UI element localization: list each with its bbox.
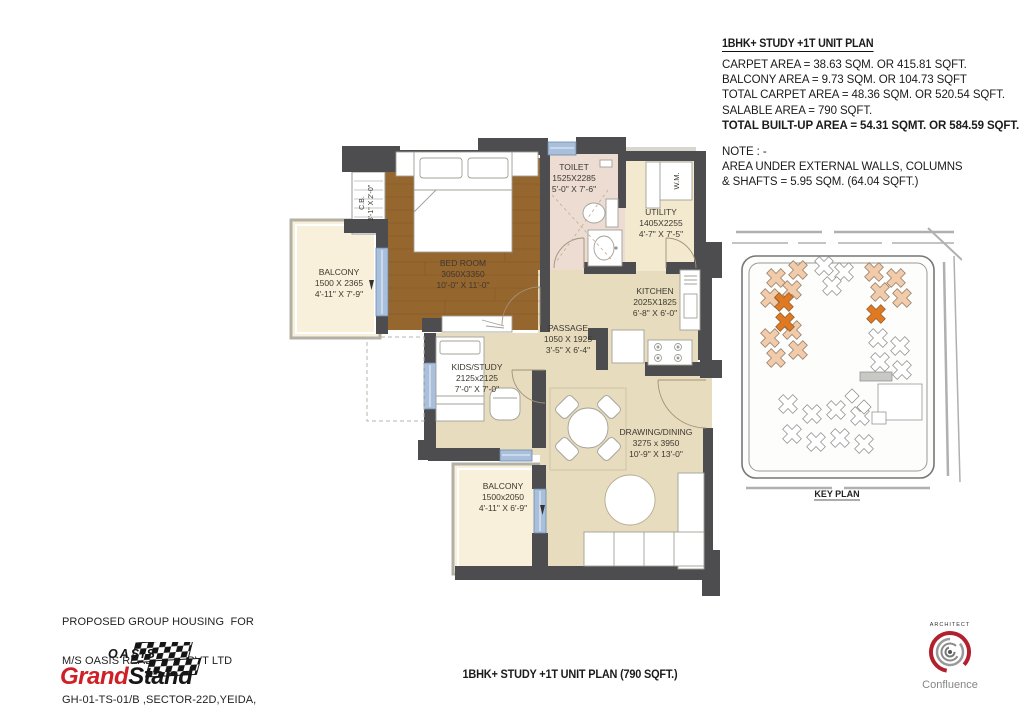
rug <box>605 475 655 525</box>
svg-text:KITCHEN: KITCHEN <box>636 286 673 296</box>
svg-text:2125x2125: 2125x2125 <box>456 373 498 383</box>
balcony-area-line: BALCONY AREA = 9.73 SQM. OR 104.73 SQFT <box>722 73 980 88</box>
svg-text:3050X3350: 3050X3350 <box>441 269 485 279</box>
svg-text:W.M.: W.M. <box>672 172 681 189</box>
architect-name: Confluence <box>916 679 984 691</box>
svg-text:BED ROOM: BED ROOM <box>440 258 486 268</box>
note-line-2: & SHAFTS = 5.95 SQM. (64.04 SQFT.) <box>722 175 980 190</box>
grandstand-logo: OASIS GrandStand <box>58 642 218 698</box>
svg-text:3'-1" X 2'-0": 3'-1" X 2'-0" <box>368 184 375 221</box>
svg-text:3'-5" X 6'-4": 3'-5" X 6'-4" <box>546 345 590 355</box>
svg-text:1050 X 1925: 1050 X 1925 <box>544 334 592 344</box>
total-carpet-area-line: TOTAL CARPET AREA = 48.36 SQM. OR 520.54… <box>722 88 980 103</box>
svg-text:1500x2050: 1500x2050 <box>482 492 524 502</box>
note-line-1: AREA UNDER EXTERNAL WALLS, COLUMNS <box>722 160 980 175</box>
svg-text:4'-7" X 7'-5": 4'-7" X 7'-5" <box>639 229 683 239</box>
key-plan-caption: KEY PLAN <box>814 489 860 500</box>
developer-name-main: GrandStand <box>60 663 194 690</box>
confluence-spiral-icon <box>926 628 974 676</box>
svg-text:10'-0" X 11'-0": 10'-0" X 11'-0" <box>436 280 489 290</box>
washing-machine-label: W.M. <box>672 172 681 189</box>
washbasin <box>588 230 622 266</box>
fridge <box>612 330 644 363</box>
svg-text:3275 x 3950: 3275 x 3950 <box>633 438 680 448</box>
carpet-area-line: CARPET AREA = 38.63 SQM. OR 415.81 SQFT. <box>722 58 980 73</box>
architect-logo: ARCHITECT Confluence <box>916 622 984 691</box>
kitchen-counter <box>680 270 700 330</box>
svg-text:4'-11" X 7'-9": 4'-11" X 7'-9" <box>315 289 363 299</box>
stove <box>648 340 692 365</box>
svg-text:1525X2285: 1525X2285 <box>552 173 596 183</box>
svg-text:2025X1825: 2025X1825 <box>633 297 677 307</box>
plan-caption: 1BHK+ STUDY +1T UNIT PLAN (790 SQFT.) <box>409 669 732 681</box>
svg-text:C.B.: C.B. <box>359 196 366 210</box>
svg-text:1500 X 2365: 1500 X 2365 <box>315 278 363 288</box>
note-title: NOTE : - <box>722 145 980 160</box>
svg-text:TOILET: TOILET <box>559 162 589 172</box>
developer-logo: OASIS GrandStand <box>58 642 218 703</box>
svg-text:UTILITY: UTILITY <box>645 207 677 217</box>
room-label-passage: PASSAGE 1050 X 1925 3'-5" X 6'-4" <box>544 323 592 355</box>
utility-shelf <box>646 162 660 208</box>
svg-text:KEY PLAN: KEY PLAN <box>814 489 859 499</box>
note-block: NOTE : - AREA UNDER EXTERNAL WALLS, COLU… <box>722 145 980 191</box>
salable-area-line: SALABLE AREA = 790 SQFT. <box>722 104 980 119</box>
room-label-kitchen: KITCHEN 2025X1825 6'-8" X 6'-0" <box>633 286 677 318</box>
svg-text:BALCONY: BALCONY <box>319 267 360 277</box>
svg-text:1405X2255: 1405X2255 <box>639 218 683 228</box>
title-block: 1BHK+ STUDY +1T UNIT PLAN CARPET AREA = … <box>722 34 980 191</box>
svg-text:10'-9" X 13'-0": 10'-9" X 13'-0" <box>629 449 683 459</box>
svg-text:4'-11" X 6'-9": 4'-11" X 6'-9" <box>479 503 527 513</box>
svg-text:DRAWING/DINING: DRAWING/DINING <box>620 427 693 437</box>
svg-text:BALCONY: BALCONY <box>483 481 524 491</box>
unit-plan-title: 1BHK+ STUDY +1T UNIT PLAN <box>722 38 873 52</box>
project-line-1: PROPOSED GROUP HOUSING FOR <box>62 616 256 629</box>
key-plan: KEY PLAN <box>732 226 962 502</box>
room-label-bedroom: BED ROOM 3050X3350 10'-0" X 11'-0" <box>436 258 489 290</box>
svg-text:7'-0" X 7'-0": 7'-0" X 7'-0" <box>455 384 499 394</box>
room-label-kids-study: KIDS/STUDY 2125x2125 7'-0" X 7'-0" <box>451 362 502 394</box>
svg-text:6'-8" X 6'-0": 6'-8" X 6'-0" <box>633 308 677 318</box>
developer-name-top: OASIS <box>108 647 157 661</box>
svg-text:PASSAGE: PASSAGE <box>548 323 588 333</box>
brochure-page: BALCONY 1500 X 2365 4'-11" X 7'-9" BED R… <box>0 0 1024 724</box>
svg-text:KIDS/STUDY: KIDS/STUDY <box>451 362 502 372</box>
room-label-balcony-bottom: BALCONY 1500x2050 4'-11" X 6'-9" <box>479 481 527 513</box>
dresser <box>442 316 512 332</box>
key-plan-area: KEY PLAN <box>732 226 962 507</box>
room-label-utility: UTILITY 1405X2255 4'-7" X 7'-5" <box>639 207 683 239</box>
room-label-balcony-top: BALCONY 1500 X 2365 4'-11" X 7'-9" <box>315 267 364 299</box>
svg-text:5'-0" X 7'-6": 5'-0" X 7'-6" <box>552 184 596 194</box>
built-up-area-line: TOTAL BUILT-UP AREA = 54.31 SQMT. OR 584… <box>722 119 980 134</box>
